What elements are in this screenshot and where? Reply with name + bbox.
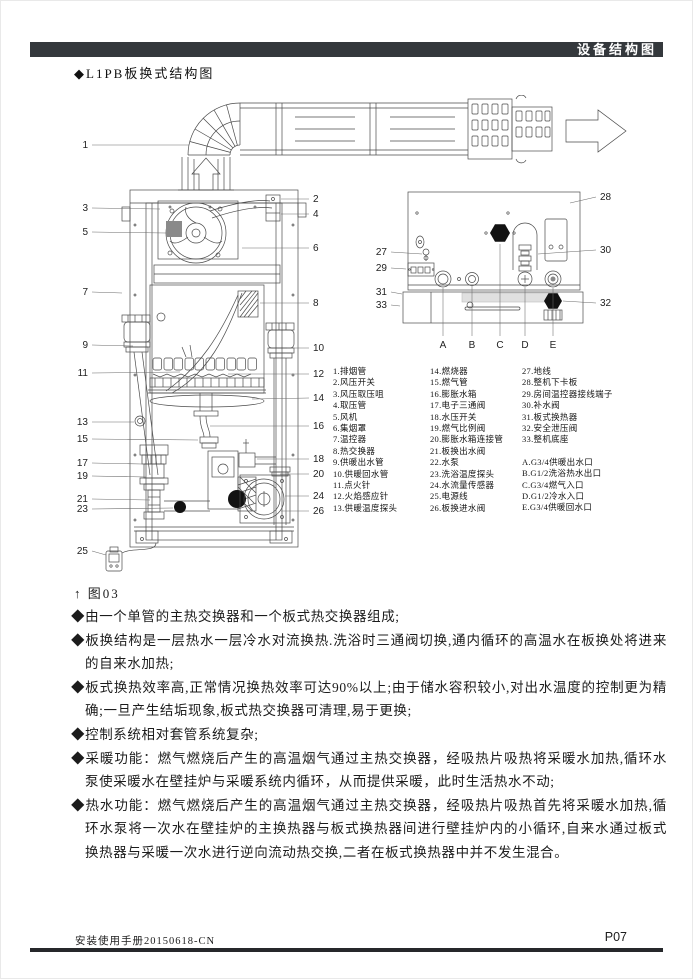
parts-column-3-items-item-0: 27.地线: [522, 366, 613, 377]
footer-manual-id: 安装使用手册20150618-CN: [75, 933, 215, 948]
manual-page: 设备结构图 ◆L1PB板换式结构图: [0, 0, 693, 979]
callout-label-20: 20: [313, 469, 325, 480]
parts-column-2-item-9: 23.洗浴温度探头: [430, 469, 522, 480]
parts-column-2-item-1: 15.燃气管: [430, 377, 522, 388]
connection-ports-list-item-4: E.G3/4供暖回水口: [522, 502, 613, 513]
callout-label-E: E: [550, 340, 557, 351]
parts-column-1-item-2: 3.风压取压咀: [333, 389, 430, 400]
figure-caption: ↑ 图03: [74, 583, 120, 602]
section-title: ◆L1PB板换式结构图: [74, 63, 214, 82]
connection-ports-list-item-2: C.G3/4燃气入口: [522, 480, 613, 491]
callout-label-16: 16: [313, 421, 325, 432]
boiler-bottom-view-drawing: [403, 192, 583, 323]
callout-leader-7: [92, 292, 122, 293]
callout-label-4: 4: [313, 209, 319, 220]
callout-label-D: D: [521, 340, 528, 351]
callout-label-18: 18: [313, 454, 325, 465]
description-bullets-item-2: ◆板式换热效率高,正常情况换热效率可达90%以上;由于储水容积较小,对出水温度的…: [71, 676, 667, 723]
callout-label-14: 14: [313, 393, 325, 404]
parts-column-3-items-item-1: 28.整机下卡板: [522, 377, 613, 388]
callout-label-31: 31: [376, 287, 388, 298]
callout-leader-21: [92, 499, 150, 500]
description-bullets: ◆由一个单管的主热交换器和一个板式热交换器组成;◆板换结构是一层热水一层冷水对流…: [71, 605, 667, 865]
callout-leader-19: [92, 476, 146, 477]
parts-column-1-item-5: 6.集烟罩: [333, 423, 430, 434]
parts-column-2-item-3: 17.电子三通阀: [430, 400, 522, 411]
parts-column-3-items-item-5: 32.安全泄压阀: [522, 423, 613, 434]
parts-column-1-item-8: 9.供暖出水管: [333, 457, 430, 468]
parts-column-1-item-11: 12.火焰感应针: [333, 491, 430, 502]
callout-label-12: 12: [313, 369, 325, 380]
parts-column-2-item-12: 26.板换进水阀: [430, 503, 522, 514]
callout-label-28: 28: [600, 192, 612, 203]
callout-label-9: 9: [82, 340, 88, 351]
parts-column-2-item-0: 14.燃烧器: [430, 366, 522, 377]
flue-direction-arrow-icon: [566, 110, 626, 152]
callout-label-6: 6: [313, 243, 319, 254]
parts-column-1-item-7: 8.热交换器: [333, 446, 430, 457]
callout-leader-31: [391, 292, 402, 294]
callout-leader-23: [92, 508, 173, 509]
description-bullets-item-4: ◆采暖功能：燃气燃烧后产生的高温烟气通过主热交换器，经吸热片吸热将采暖水加热,循…: [71, 747, 667, 794]
parts-column-2-item-4: 18.水压开关: [430, 412, 522, 423]
callout-label-5: 5: [82, 227, 88, 238]
flue-pipe-drawing: [178, 95, 552, 190]
callout-label-33: 33: [376, 300, 388, 311]
callout-leader-11: [92, 372, 180, 373]
callout-label-8: 8: [313, 298, 319, 309]
footer-rule: [30, 948, 663, 952]
callout-label-2: 2: [313, 194, 319, 205]
parts-column-1-item-10: 11.点火针: [333, 480, 430, 491]
callout-label-19: 19: [77, 471, 89, 482]
callout-leader-33: [391, 305, 400, 306]
parts-column-3-items-item-4: 31.板式换热器: [522, 412, 613, 423]
callout-label-B: B: [469, 340, 476, 351]
manual-page-body: { "page": { "header_title": "设备结构图", "se…: [0, 0, 693, 979]
connection-ports-list-item-3: D.G1/2冷水入口: [522, 491, 613, 502]
callout-leader-14: [252, 398, 309, 399]
callout-leader-29: [391, 268, 406, 269]
parts-column-2-item-11: 25.电源线: [430, 491, 522, 502]
callout-label-11: 11: [78, 368, 89, 379]
callout-label-32: 32: [600, 298, 612, 309]
callout-leader-3: [92, 208, 160, 209]
description-bullets-item-3: ◆控制系统相对套管系统复杂;: [71, 723, 667, 747]
parts-column-3: 27.地线28.整机下卡板29.房间温控器接线端子30.补水阀31.板式换热器3…: [522, 366, 613, 514]
callout-label-7: 7: [82, 287, 88, 298]
callout-leader-27: [391, 252, 422, 254]
parts-column-2-item-8: 22.水泵: [430, 457, 522, 468]
parts-column-2: 14.燃烧器15.燃气管16.膨胀水箱17.电子三通阀18.水压开关19.燃气比…: [430, 366, 522, 514]
parts-column-3-items: 27.地线28.整机下卡板29.房间温控器接线端子30.补水阀31.板式换热器3…: [522, 366, 613, 446]
parts-column-1-item-9: 10.供暖回水管: [333, 469, 430, 480]
description-bullets-item-5: ◆热水功能：燃气燃烧后产生的高温烟气通过主热交换器，经吸热片吸热首先将采暖水加热…: [71, 794, 667, 865]
callout-leader-28: [570, 197, 596, 203]
parts-list: 1.排烟管2.风压开关3.风压取压咀4.取压管5.风机6.集烟罩7.温控器8.热…: [333, 366, 613, 514]
callout-label-C: C: [496, 340, 503, 351]
callout-label-27: 27: [376, 247, 388, 258]
header-bar: 设备结构图: [30, 42, 663, 57]
callout-label-A: A: [440, 340, 447, 351]
parts-column-1-item-4: 5.风机: [333, 412, 430, 423]
parts-column-1-item-1: 2.风压开关: [333, 377, 430, 388]
callout-label-1: 1: [82, 140, 88, 151]
callout-label-26: 26: [313, 506, 325, 517]
parts-column-3-items-item-6: 33.整机底座: [522, 434, 613, 445]
parts-column-1-item-0: 1.排烟管: [333, 366, 430, 377]
callout-label-13: 13: [77, 417, 89, 428]
connection-ports-list: A.G3/4供暖出水口B.G1/2洗浴热水出口C.G3/4燃气入口D.G1/2冷…: [522, 457, 613, 514]
callout-leader-17: [92, 463, 142, 464]
footer-page-number: P07: [605, 930, 627, 944]
parts-column-1-item-6: 7.温控器: [333, 434, 430, 445]
parts-column-1: 1.排烟管2.风压开关3.风压取压咀4.取压管5.风机6.集烟罩7.温控器8.热…: [333, 366, 430, 514]
parts-column-1-item-3: 4.取压管: [333, 400, 430, 411]
callout-label-17: 17: [77, 458, 89, 469]
parts-column-2-item-5: 19.燃气比例阀: [430, 423, 522, 434]
parts-column-3-items-item-3: 30.补水阀: [522, 400, 613, 411]
callout-label-23: 23: [77, 504, 89, 515]
callout-label-29: 29: [376, 263, 388, 274]
callout-label-25: 25: [77, 546, 89, 557]
parts-column-2-item-6: 20.膨胀水箱连接管: [430, 434, 522, 445]
parts-column-2-item-2: 16.膨胀水箱: [430, 389, 522, 400]
connection-ports-list-item-1: B.G1/2洗浴热水出口: [522, 468, 613, 479]
callout-leader-25: [92, 551, 106, 555]
callout-leader-9: [92, 345, 133, 346]
description-bullets-item-0: ◆由一个单管的主热交换器和一个板式热交换器组成;: [71, 605, 667, 629]
header-title: 设备结构图: [577, 42, 657, 57]
callout-leader-5: [92, 232, 166, 233]
callout-label-30: 30: [600, 245, 612, 256]
callout-label-24: 24: [313, 491, 325, 502]
parts-column-2-item-10: 24.水流量传感器: [430, 480, 522, 491]
description-bullets-item-1: ◆板换结构是一层热水一层冷水对流换热.洗浴时三通阀切换,通内循环的高温水在板换处…: [71, 629, 667, 676]
callout-label-10: 10: [313, 343, 325, 354]
parts-column-1-item-12: 13.供暖温度探头: [333, 503, 430, 514]
boiler-front-view-drawing: [106, 190, 306, 571]
callout-leader-32: [563, 301, 596, 303]
parts-column-2-item-7: 21.板换出水阀: [430, 446, 522, 457]
callout-label-15: 15: [77, 434, 89, 445]
connection-ports-list-item-0: A.G3/4供暖出水口: [522, 457, 613, 468]
parts-column-3-items-item-2: 29.房间温控器接线端子: [522, 389, 613, 400]
callout-label-3: 3: [82, 203, 88, 214]
